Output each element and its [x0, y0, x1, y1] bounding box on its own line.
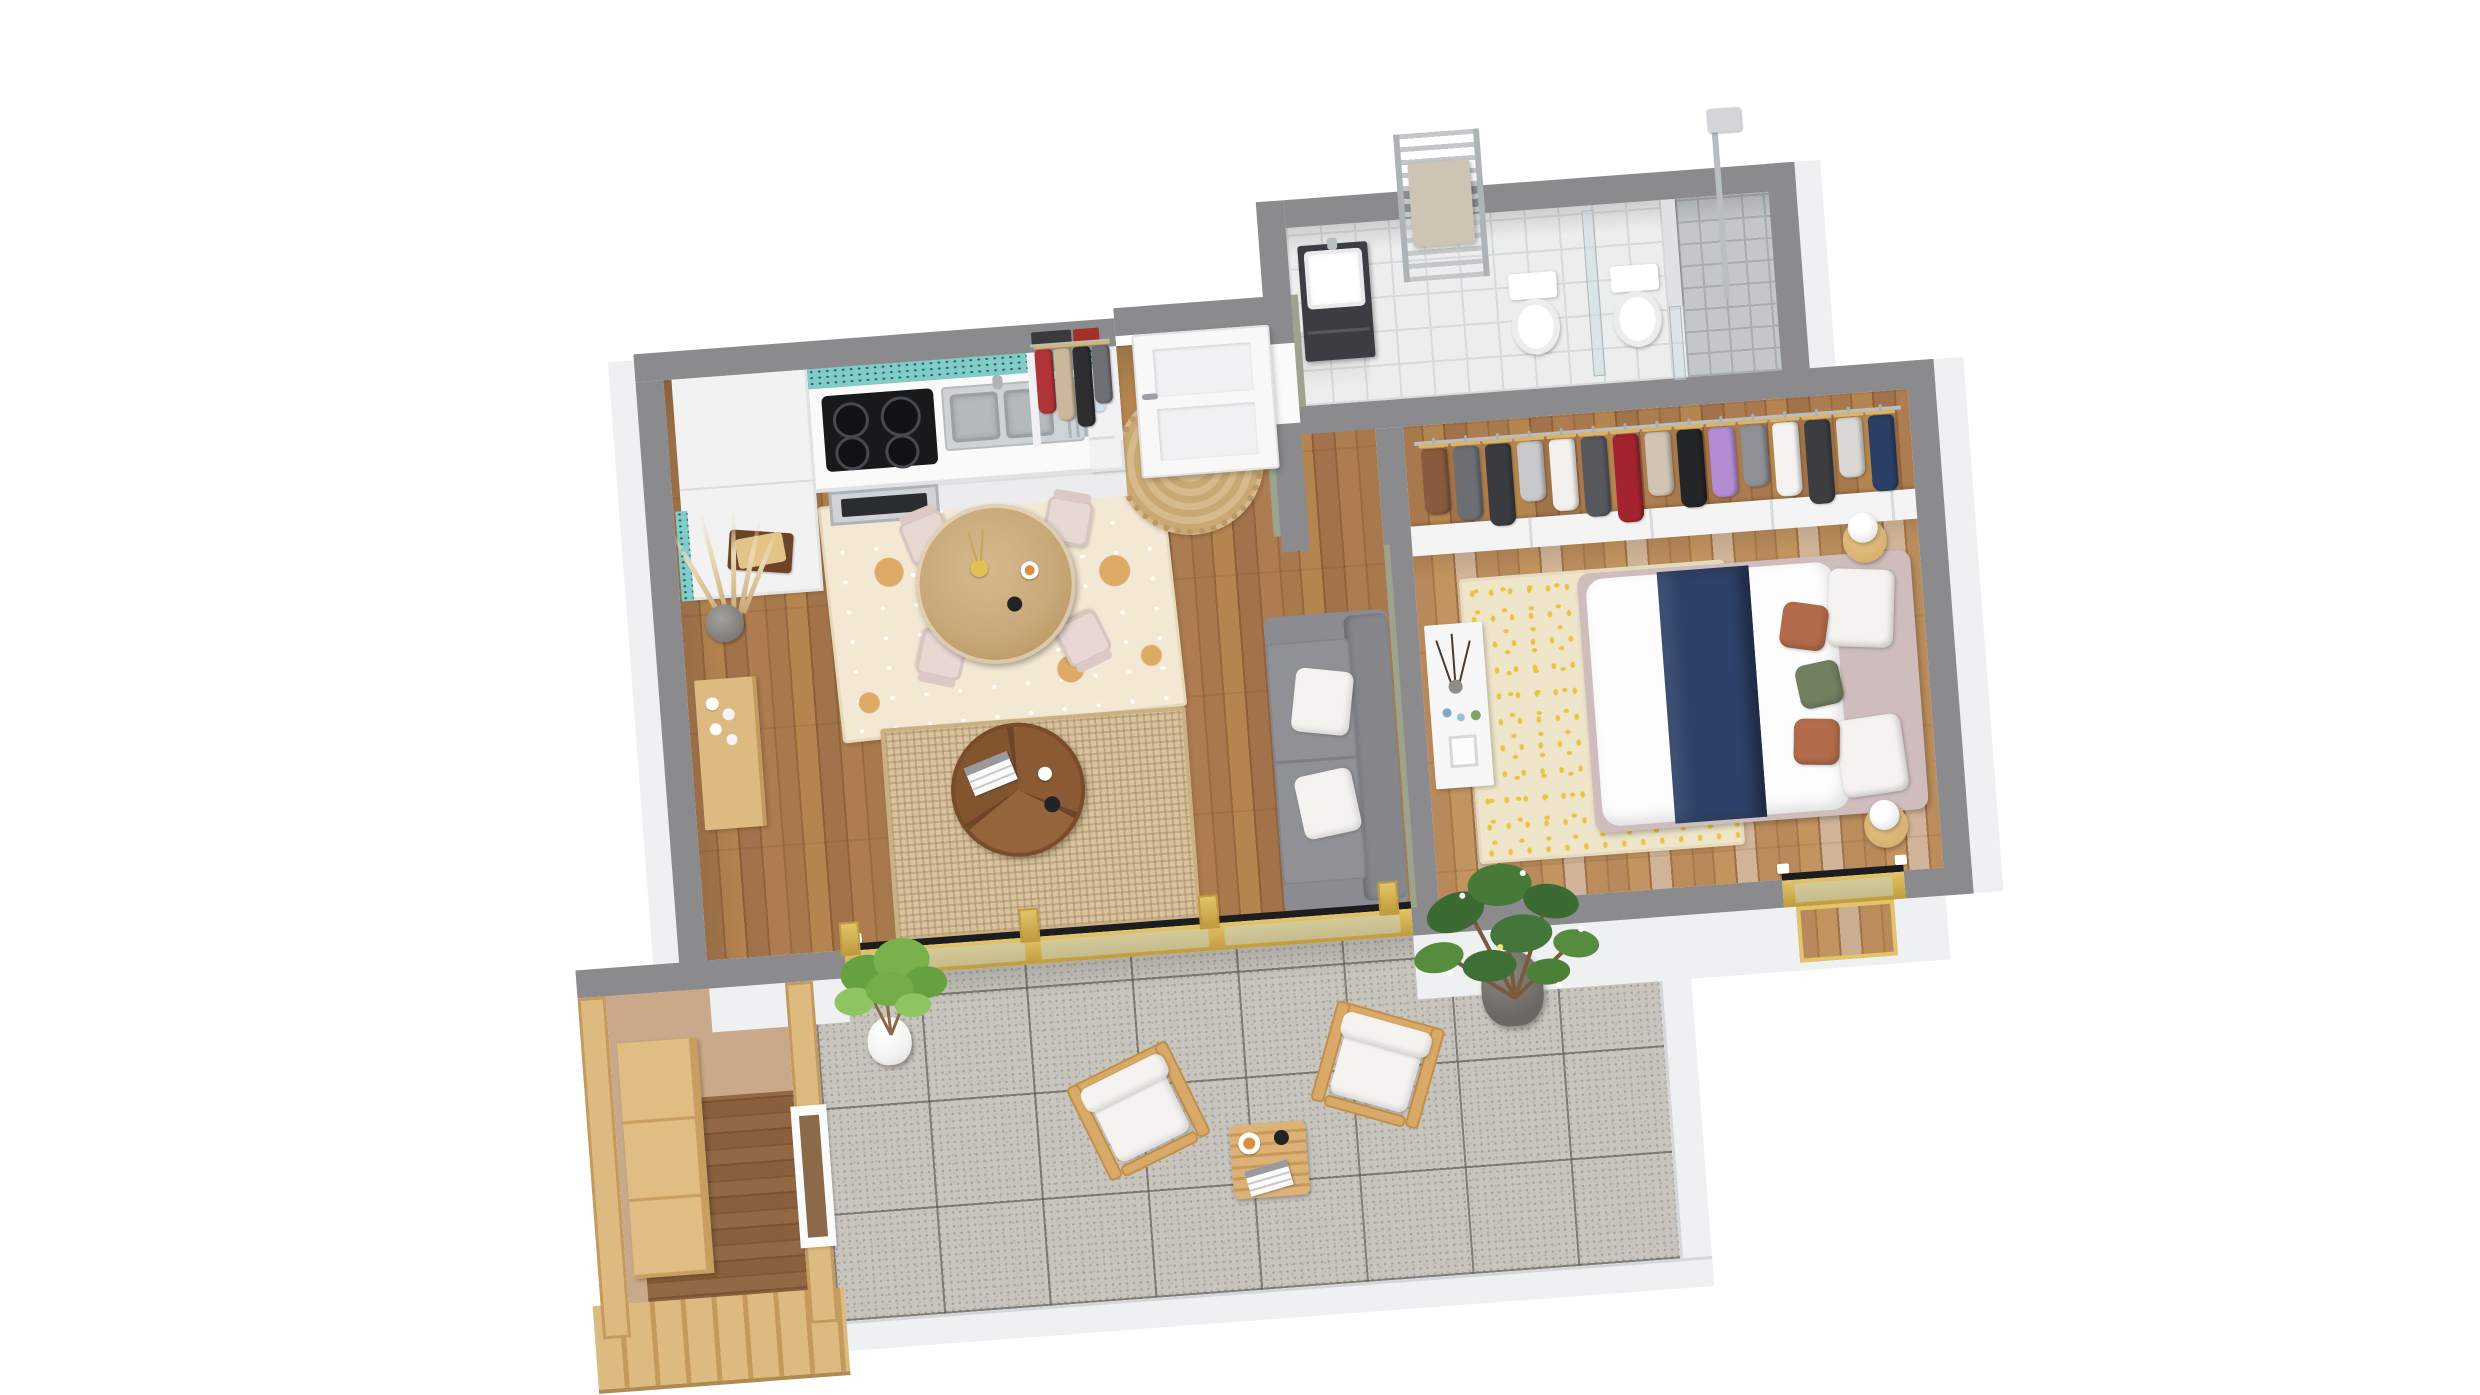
closet-garment: [1580, 436, 1612, 518]
storage-box-seam: [629, 1193, 709, 1202]
sofa-cushion-top: [1290, 667, 1354, 736]
closet-garment: [1421, 448, 1452, 516]
sideboard-dish: [722, 708, 735, 721]
storage-box-seam: [623, 1115, 703, 1124]
front-door-panel-bottom: [1157, 402, 1259, 461]
front-door-panel-top: [1152, 342, 1253, 397]
dresser-bottle-blue: [1442, 708, 1452, 718]
radiator-towel: [1407, 159, 1475, 247]
closet-garment: [1612, 433, 1645, 523]
sink-faucet: [992, 375, 1003, 390]
closet-garment: [1740, 424, 1771, 488]
closet-garment: [1453, 445, 1484, 521]
bedroom-door-clip-right: [1894, 854, 1907, 865]
bedroom-glass-door-pane: [1794, 876, 1893, 902]
shower-head: [1706, 107, 1742, 133]
bed-pillow-terracotta-top: [1778, 601, 1830, 653]
vanity-faucet: [1327, 237, 1338, 250]
vanity-drawer-line: [1308, 327, 1370, 335]
kitchen-hob: [821, 388, 938, 472]
apartment-plan: [0, 0, 2480, 1395]
toilet-tank: [1508, 271, 1558, 301]
closet-garment: [1708, 426, 1739, 498]
closet-garment: [1867, 414, 1899, 492]
latte-coffee: [1024, 565, 1035, 576]
bathroom-vanity: [1297, 241, 1376, 362]
bedroom-door-threshold: [1796, 899, 1898, 962]
terrace-side-table: [1229, 1120, 1310, 1199]
hob-burner: [834, 435, 870, 471]
dresser-frame: [1448, 734, 1478, 768]
coat-items: [1030, 339, 1117, 435]
hob-burner: [884, 433, 920, 469]
sink-basin-left: [949, 391, 1000, 442]
bed-pillow-white-bottom: [1834, 712, 1911, 799]
dresser-plant-sprig: [1470, 710, 1481, 721]
closet-garment: [1836, 416, 1866, 478]
closet-garment: [1644, 431, 1675, 497]
terrace-mug-black: [1273, 1129, 1289, 1145]
dresser-branch: [1451, 634, 1457, 684]
towel-radiator: [1393, 128, 1490, 282]
terrace-plant-foliage: [1389, 840, 1631, 1027]
door-mullion: [1018, 908, 1040, 943]
vanity-basin: [1304, 248, 1366, 310]
terrace-latte: [1243, 1137, 1256, 1150]
dresser-branch: [1458, 640, 1470, 683]
closet-garment: [1516, 440, 1546, 502]
sideboard-dish: [726, 734, 738, 746]
dresser-branch: [1435, 640, 1452, 684]
terrace-bush-foliage: [811, 917, 970, 1048]
terrace-saucer: [1237, 1132, 1261, 1156]
pampas-arrangement: [671, 504, 791, 648]
closet-garment: [1548, 438, 1579, 512]
closet-garment: [1676, 428, 1708, 508]
bed-pillow-olive: [1793, 658, 1845, 710]
wc-toilet-tank: [1610, 263, 1660, 293]
sideboard-dish: [709, 723, 722, 736]
door-mullion: [1198, 894, 1220, 929]
front-door: [1131, 325, 1279, 479]
front-door-handle: [1142, 393, 1158, 400]
sideboard-dish: [705, 697, 719, 711]
bedroom-dresser: [1424, 622, 1494, 790]
bedroom-door-clip-left: [1777, 863, 1790, 874]
pampas-plume: [731, 510, 737, 618]
sideboard: [694, 676, 767, 830]
hob-burner: [832, 401, 871, 440]
dresser-bottle-blue: [1457, 713, 1466, 722]
bed-pillow-white-top: [1827, 568, 1895, 648]
terrace-magazine: [1244, 1159, 1294, 1196]
entry-coat: [1091, 345, 1113, 404]
dresser-vase: [1448, 679, 1463, 694]
closet-garment: [1804, 419, 1836, 505]
sofa-seat-seam: [1274, 755, 1358, 764]
closet-garment: [1772, 421, 1803, 497]
bed-navy-throw: [1657, 565, 1768, 823]
floor-plan-render: [0, 0, 2480, 1395]
closet-garment: [1485, 443, 1517, 527]
bed-pillow-terracotta-bottom: [1793, 718, 1840, 765]
hob-burner: [879, 395, 922, 438]
